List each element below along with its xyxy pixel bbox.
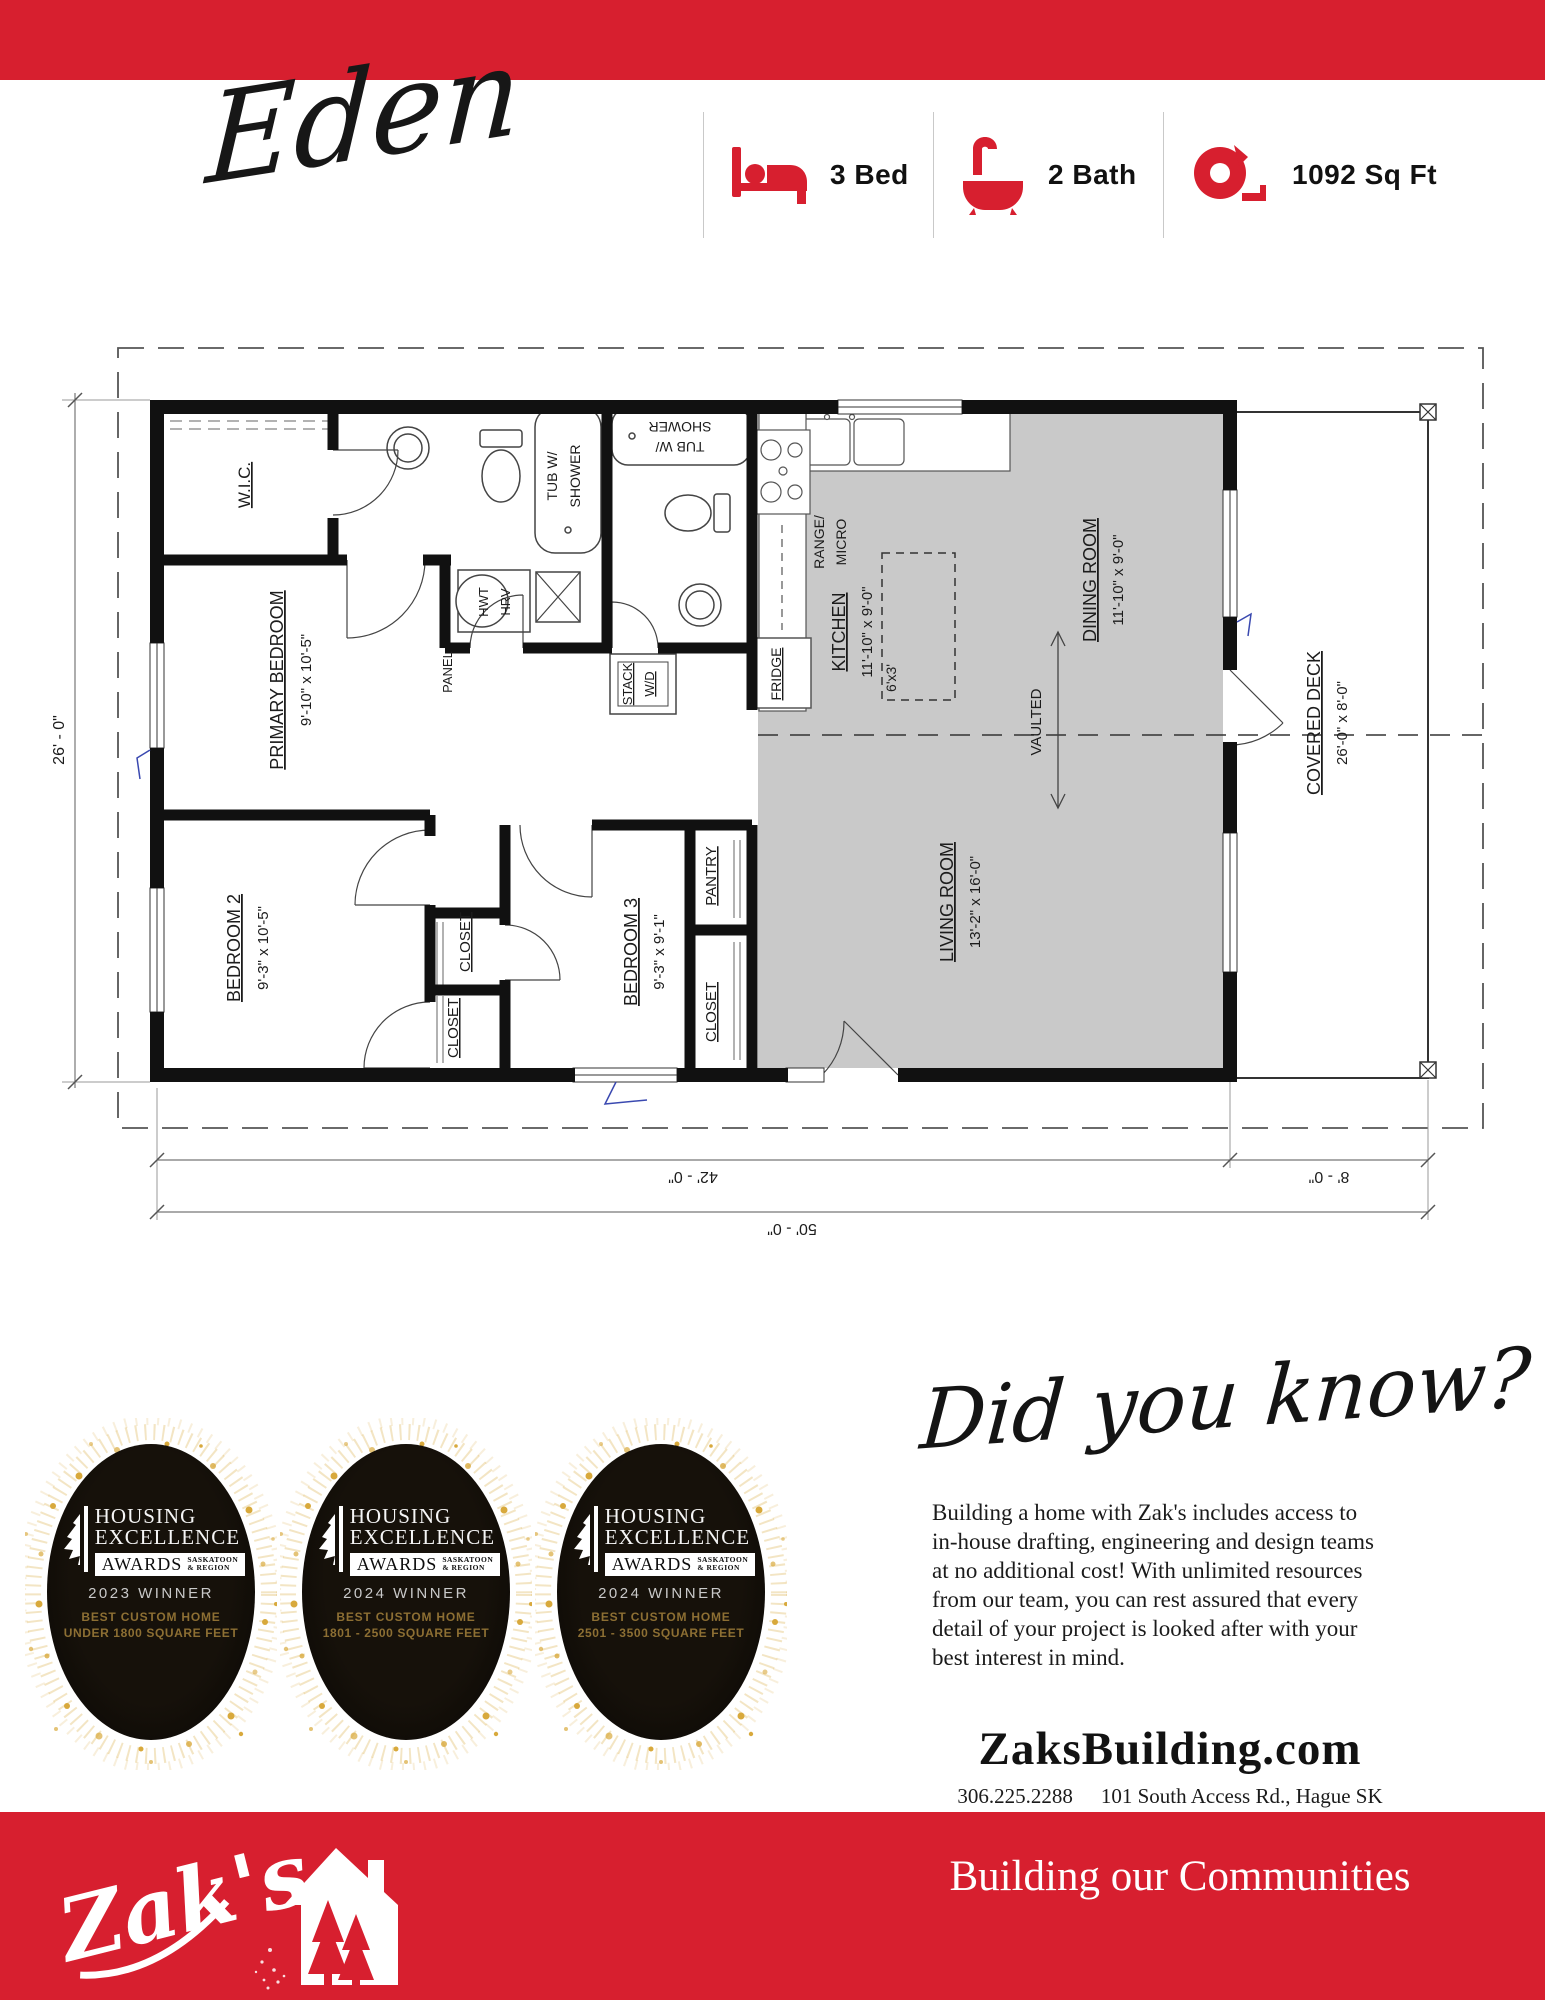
label-range-2: MICRO (833, 519, 849, 566)
label-pantry: PANTRY (703, 846, 720, 905)
badge-title-2: EXCELLENCE (95, 1527, 245, 1548)
label-closet-2: CLOSET (445, 998, 462, 1058)
award-badge-2023: HOUSING EXCELLENCE AWARDS SASKATOON& REG… (25, 1418, 277, 1770)
label-bedroom2-dim: 9'-3" x 10'-5" (255, 906, 272, 990)
label-stack-2: W/D (642, 671, 657, 696)
phone-number: 306.225.2288 (957, 1784, 1073, 1808)
label-island-dim: 6'x3' (883, 664, 899, 692)
label-bedroom2: BEDROOM 2 (224, 894, 244, 1002)
spec-bed: 3 Bed (703, 112, 933, 238)
zaks-logo: Zak's (48, 1824, 448, 1994)
award-category: BEST CUSTOM HOME (591, 1610, 730, 1624)
label-bedroom3: BEDROOM 3 (621, 898, 641, 1006)
award-category: BEST CUSTOM HOME (336, 1610, 475, 1624)
label-hrv: HRV (498, 588, 513, 616)
spec-bath: 2 Bath (933, 112, 1163, 238)
label-range-1: RANGE/ (811, 515, 827, 569)
award-badge-2024a: HOUSING EXCELLENCE AWARDS SASKATOON& REG… (280, 1418, 532, 1770)
label-tub2-1: SHOWER (649, 419, 712, 435)
awards-word: AWARDS (612, 1555, 693, 1573)
label-panel: PANEL (440, 651, 455, 693)
bed-icon (730, 143, 808, 207)
label-tub1-2: SHOWER (567, 445, 583, 508)
award-badge-2024b: HOUSING EXCELLENCE AWARDS SASKATOON& REG… (535, 1418, 787, 1770)
label-primary-dim: 9'-10" x 10'-5" (298, 634, 315, 726)
label-deck-dim: 26'-0" x 8'-0" (1334, 681, 1351, 765)
maple-leaf-icon (567, 1506, 599, 1574)
did-you-know-heading: Did you know? (917, 1330, 1533, 1468)
dim-left: 26' - 0" (51, 715, 68, 765)
badge-title-1: HOUSING (605, 1506, 755, 1527)
winner-year: 2024 WINNER (343, 1585, 469, 1602)
website-link[interactable]: ZaksBuilding.com (880, 1722, 1460, 1776)
dim-8: 8' - 0" (1309, 1168, 1350, 1185)
awards-box: AWARDS SASKATOON& REGION (350, 1553, 500, 1576)
region-2: & REGION (187, 1564, 238, 1572)
badge-title-1: HOUSING (95, 1506, 245, 1527)
spec-bed-label: 3 Bed (830, 159, 909, 191)
contact-line: 306.225.2288101 South Access Rd., Hague … (880, 1784, 1460, 1809)
label-tub2-2: TUB W/ (655, 439, 704, 455)
label-covered-deck: COVERED DECK (1304, 651, 1324, 795)
open-area-fill (758, 413, 1223, 1068)
label-living-dim: 13'-2" x 16'-0" (967, 856, 984, 948)
region-2: & REGION (442, 1564, 493, 1572)
label-primary-bedroom: PRIMARY BEDROOM (267, 590, 287, 769)
tape-measure-icon (1190, 141, 1270, 209)
label-closet-3: CLOSET (703, 982, 720, 1042)
footer-bar: Zak's Building our Communities (0, 1812, 1545, 2000)
label-hwt: HWT (476, 587, 491, 617)
maple-leaf-icon (312, 1506, 344, 1574)
winner-year: 2024 WINNER (598, 1585, 724, 1602)
badge-title-2: EXCELLENCE (605, 1527, 755, 1548)
label-stack-1: STACK (620, 662, 635, 705)
award-detail: 2501 - 3500 SQUARE FEET (578, 1626, 745, 1640)
flyer-page: Eden 3 Bed (0, 0, 1545, 2000)
label-closet-1: CLOSET (457, 912, 474, 972)
spec-row: 3 Bed 2 Bath (703, 112, 1445, 238)
award-detail: UNDER 1800 SQUARE FEET (64, 1626, 239, 1640)
bath-icon (960, 135, 1026, 215)
footer-tagline: Building our Communities (880, 1852, 1480, 1901)
winner-year: 2023 WINNER (88, 1585, 214, 1602)
label-tub1-1: TUB W/ (544, 451, 560, 500)
award-detail: 1801 - 2500 SQUARE FEET (323, 1626, 490, 1640)
did-you-know-body: Building a home with Zak's includes acce… (932, 1498, 1384, 1672)
label-living: LIVING ROOM (937, 842, 957, 962)
label-kitchen-dim: 11'-10" x 9'-0" (859, 586, 876, 677)
awards-word: AWARDS (357, 1555, 438, 1573)
label-dining: DINING ROOM (1080, 518, 1100, 642)
label-dining-dim: 11'-10" x 9'-0" (1110, 534, 1127, 625)
awards-row: HOUSING EXCELLENCE AWARDS SASKATOON& REG… (0, 1418, 800, 1778)
address: 101 South Access Rd., Hague SK (1101, 1784, 1383, 1808)
dim-50: 50' - 0" (767, 1220, 817, 1237)
label-fridge: FRIDGE (768, 648, 784, 701)
spec-sqft-label: 1092 Sq Ft (1292, 159, 1437, 191)
label-kitchen: KITCHEN (829, 592, 849, 671)
awards-box: AWARDS SASKATOON& REGION (605, 1553, 755, 1576)
maple-leaf-icon (57, 1506, 89, 1574)
badge-title-2: EXCELLENCE (350, 1527, 500, 1548)
badge-title-1: HOUSING (350, 1506, 500, 1527)
region-2: & REGION (697, 1564, 748, 1572)
label-wic: W.I.C. (235, 462, 254, 508)
label-bedroom3-dim: 9'-3" x 9'-1" (651, 914, 668, 990)
awards-word: AWARDS (102, 1555, 183, 1573)
dim-42: 42' - 0" (668, 1168, 718, 1185)
spec-sqft: 1092 Sq Ft (1163, 112, 1445, 238)
zaks-logo-text: Zak's (48, 1824, 319, 1983)
floor-plan: W.I.C. PRIMARY BEDROOM 9'-10" x 10'-5" B… (0, 280, 1545, 1250)
label-vaulted: VAULTED (1028, 688, 1045, 755)
award-category: BEST CUSTOM HOME (81, 1610, 220, 1624)
spec-bath-label: 2 Bath (1048, 159, 1137, 191)
awards-box: AWARDS SASKATOON& REGION (95, 1553, 245, 1576)
